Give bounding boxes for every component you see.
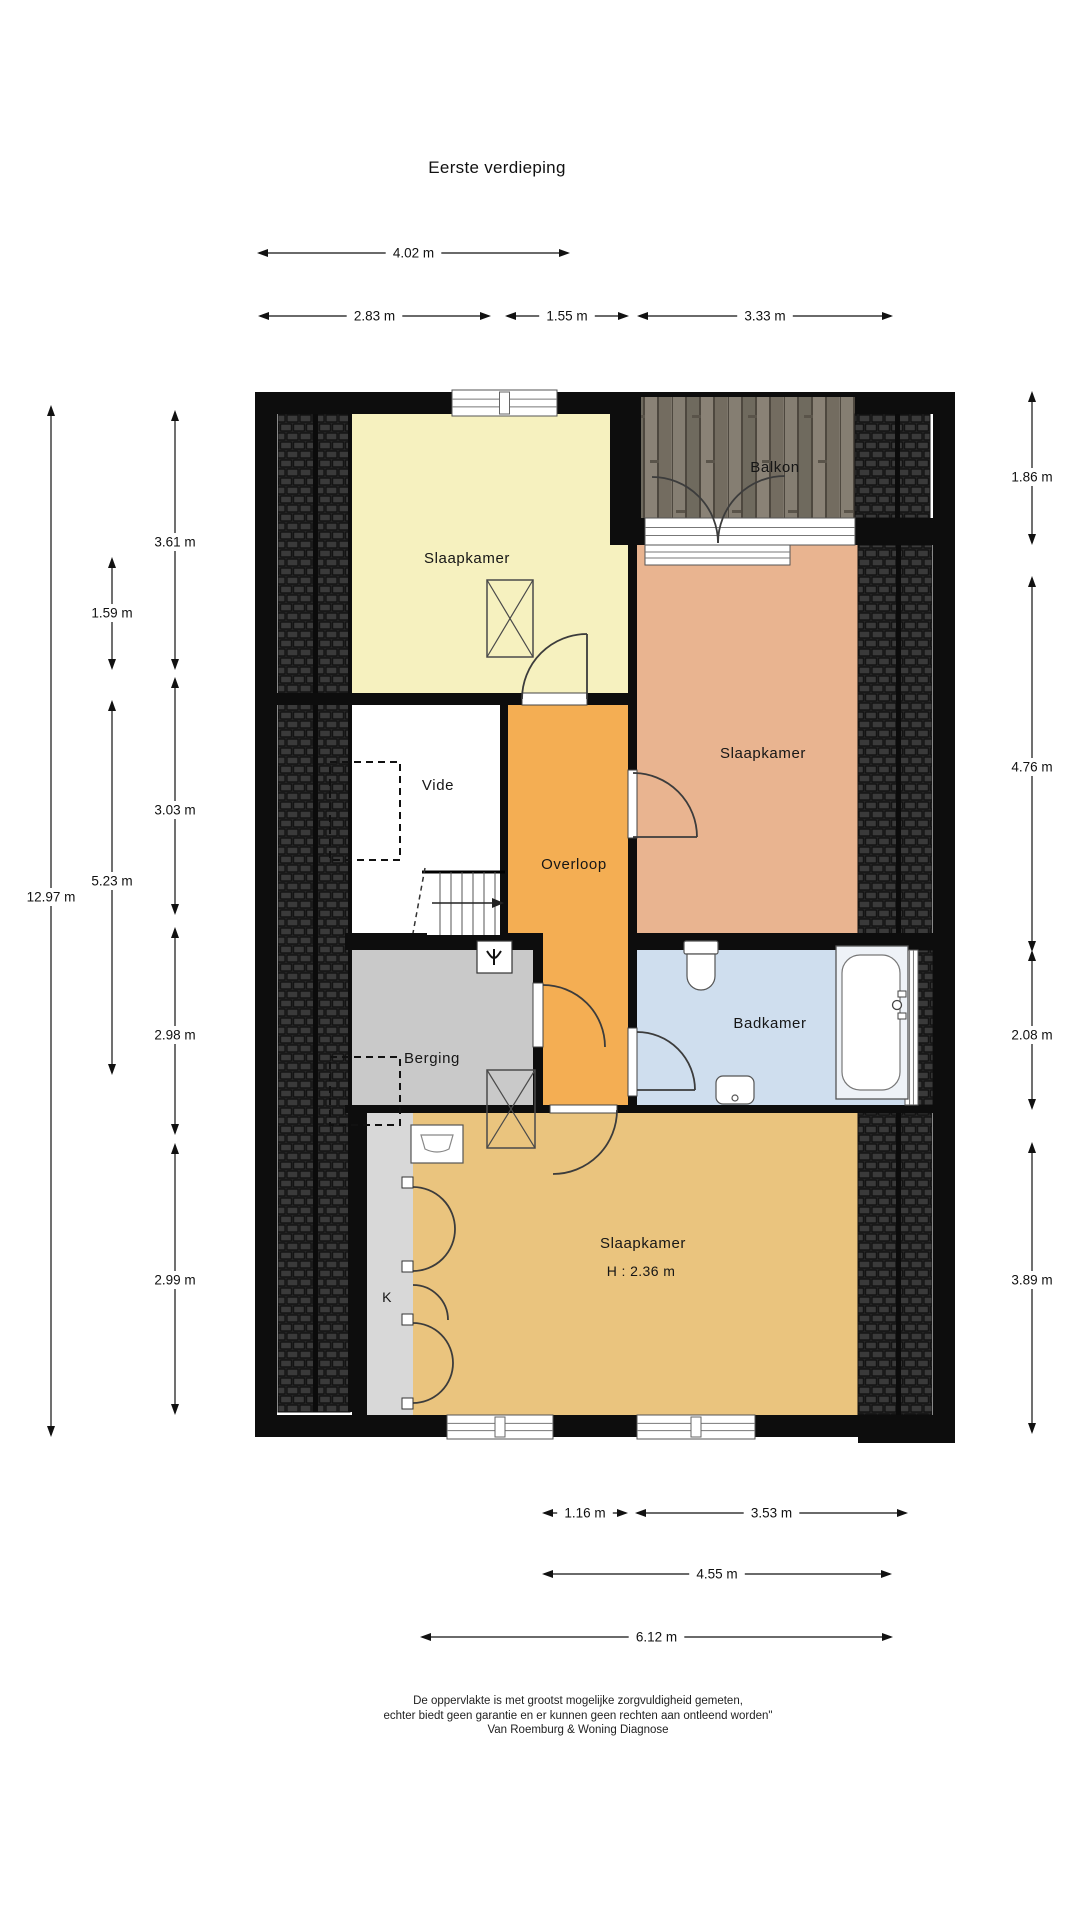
berging-basin [411,1125,463,1163]
dimension-label: 3.89 m [1011,1273,1052,1288]
room-label: Balkon [750,459,799,476]
wall [255,1415,955,1437]
dimension-label: 2.83 m [354,309,395,324]
dimension-label: 6.12 m [636,1630,677,1645]
room-label: H : 2.36 m [607,1263,676,1279]
dimension-label: 4.76 m [1011,760,1052,775]
bath-faucet [893,1001,902,1010]
disclaimer-line-2: echter biedt geen garantie en er kunnen … [0,1709,1080,1724]
toilet [684,941,718,954]
room-label: K [382,1289,392,1305]
dimension-label: 2.08 m [1011,1028,1052,1043]
wall [641,392,855,397]
dimension-label: 1.86 m [1011,470,1052,485]
dimension-label: 4.02 m [393,246,434,261]
balkon-doorsill [645,518,855,545]
wall [255,392,641,414]
wall [345,1105,955,1113]
wall [858,1415,955,1443]
room-label: Slaapkamer [600,1235,686,1252]
dimension-label: 3.53 m [751,1506,792,1521]
disclaimer-line-3: Van Roemburg & Woning Diagnose [0,1723,1080,1738]
room-label: Badkamer [733,1015,806,1032]
roof-hatch [855,414,930,518]
room-slaapkamer-2 [637,530,858,942]
page-title: Eerste verdieping [0,158,994,178]
dimension-label: 3.61 m [154,535,195,550]
room-label: Berging [404,1050,460,1067]
floorplan-page: Eerste verdieping SlaapkamerBalkonSlaapk… [0,0,1080,1920]
disclaimer-line-1: De oppervlakte is met grootst mogelijke … [0,1694,1080,1709]
dimension-label: 3.03 m [154,803,195,818]
room-label: Slaapkamer [424,550,510,567]
room-label: Vide [422,777,454,794]
dimension-label: 1.16 m [564,1506,605,1521]
dimension-label: 2.99 m [154,1273,195,1288]
wall [933,392,955,1437]
wall [500,699,508,945]
wall [345,933,543,950]
dimension-label: 12.97 m [27,890,76,905]
dimension-label: 4.55 m [696,1567,737,1582]
room-label: Overloop [541,856,607,873]
door-frame [628,1028,637,1096]
wall [348,414,352,1412]
roof-hatch [858,545,932,938]
door-frame [522,693,587,705]
dimension-label: 5.23 m [91,874,132,889]
roof-hatch [918,950,933,1105]
door-frame [533,983,543,1047]
room-label: Slaapkamer [720,745,806,762]
dimension-label: 3.33 m [744,309,785,324]
door-frame [550,1105,617,1113]
roof-hatch [858,1113,932,1415]
dimension-label: 1.55 m [546,309,587,324]
wall [255,392,277,1437]
footer-disclaimer: De oppervlakte is met grootst mogelijke … [0,1694,1080,1738]
balkon-deck [641,395,855,518]
wall [352,1113,367,1415]
dimension-label: 1.59 m [91,606,132,621]
door-frame [628,770,637,838]
dimension-label: 2.98 m [154,1028,195,1043]
washbasin [716,1076,754,1104]
floor-plan-drawing: SlaapkamerBalkonSlaapkamerVideOverloopBe… [0,0,1080,1920]
window-slaapkamer-2 [645,545,790,565]
